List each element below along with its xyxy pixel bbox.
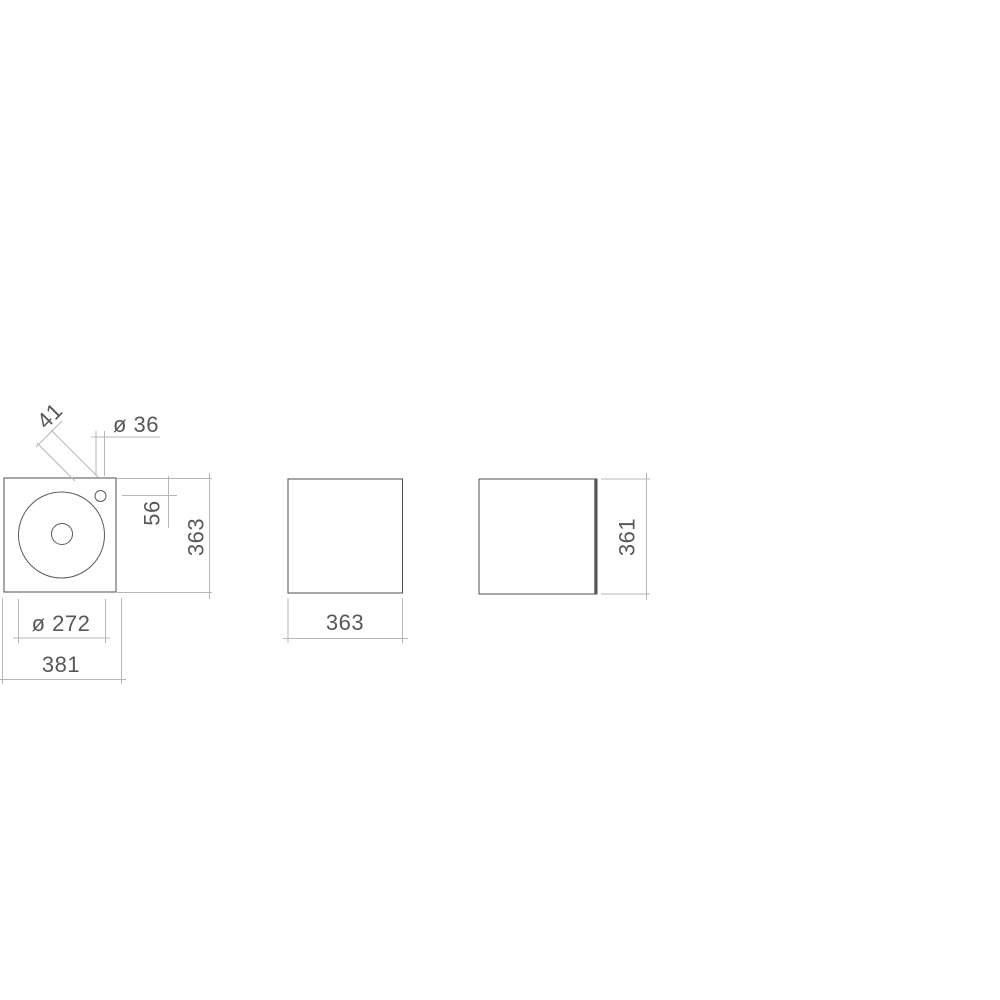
dim-41-extension-a [51, 430, 98, 477]
front-view: 363 [283, 479, 408, 643]
dim-363-top-label: 363 [184, 518, 209, 556]
top-view: ø 36 41 56 363 ø 272 381 [0, 398, 212, 684]
dimension-drawing: ø 36 41 56 363 ø 272 381 [0, 0, 1000, 1000]
dim-361-label: 361 [615, 518, 640, 556]
top-view-body [4, 478, 116, 592]
tap-hole-circle [95, 491, 106, 502]
dim-363-front-label: 363 [326, 610, 364, 635]
side-view-body [479, 479, 597, 594]
front-view-body [288, 479, 403, 593]
basin-circle [19, 492, 105, 578]
dim-56-label: 56 [140, 500, 165, 525]
dim-41-label: 41 [32, 398, 68, 434]
dim-tap-diameter-label: ø 36 [113, 412, 159, 437]
drawing-canvas: ø 36 41 56 363 ø 272 381 [0, 0, 1000, 1000]
dim-381-label: 381 [42, 652, 80, 677]
drain-circle [52, 524, 73, 545]
dim-basin-diameter-label: ø 272 [32, 611, 91, 636]
side-view: 361 [479, 473, 650, 600]
